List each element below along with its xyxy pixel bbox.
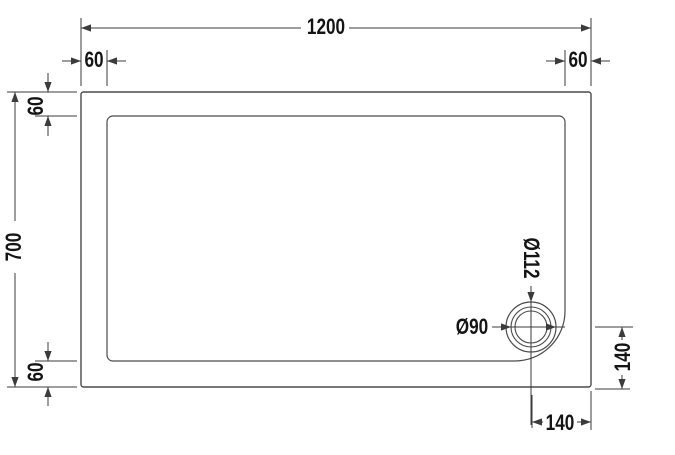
inset-top-right-label: 60 (568, 49, 587, 71)
inset-top-left-label: 60 (84, 49, 103, 71)
waste-drain-group (492, 286, 565, 425)
tray-inner-edge (107, 116, 565, 361)
tray-outer-edge (81, 92, 591, 387)
waste-outer-diameter-label: Ø112 (520, 237, 542, 278)
shower-tray-technical-drawing: 1200 60 60 700 60 60 Ø112 Ø90 140 140 (0, 0, 675, 455)
inset-left-top-label: 60 (25, 96, 47, 115)
inset-left-bottom-label: 60 (25, 362, 47, 381)
overall-width-label: 1200 (307, 16, 345, 38)
overall-depth-label: 700 (3, 233, 25, 262)
tray-outline-group (81, 92, 591, 387)
waste-offset-bottom-label: 140 (612, 343, 634, 372)
waste-inner-diameter-label: Ø90 (456, 316, 488, 338)
waste-offset-right-label: 140 (546, 412, 575, 434)
